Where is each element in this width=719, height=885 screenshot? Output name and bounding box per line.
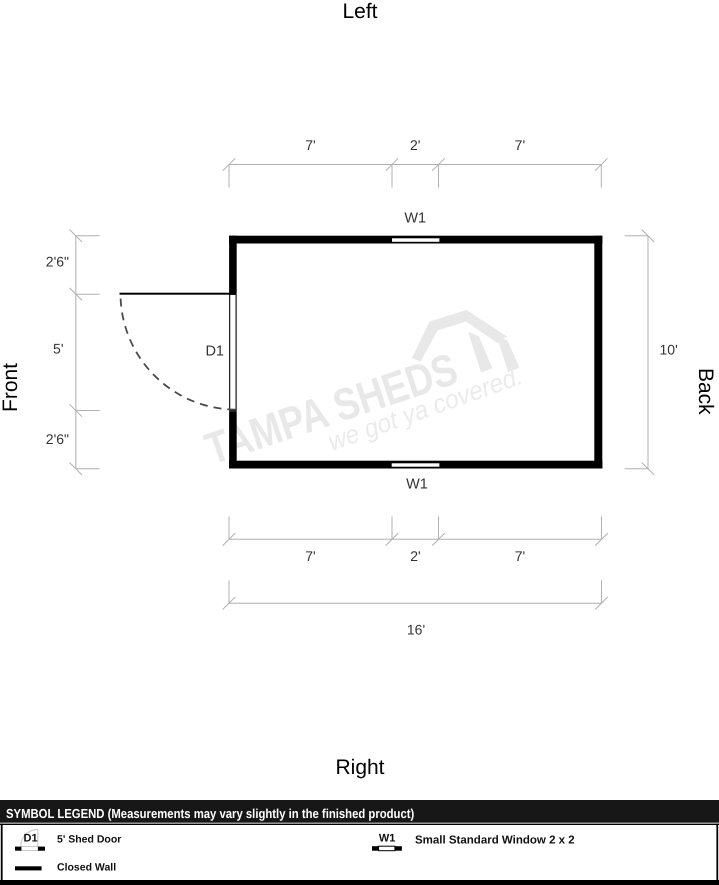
svg-text:2'6": 2'6" (46, 254, 69, 270)
svg-text:7': 7' (305, 137, 315, 153)
svg-text:10': 10' (660, 342, 678, 358)
svg-text:Small Standard Window 2 x 2: Small Standard Window 2 x 2 (415, 835, 575, 847)
svg-text:Right: Right (335, 756, 384, 779)
svg-text:Back: Back (694, 368, 717, 415)
svg-text:D1: D1 (24, 833, 38, 845)
svg-text:W1: W1 (404, 211, 426, 227)
svg-text:Closed Wall: Closed Wall (57, 862, 116, 874)
svg-text:2'6": 2'6" (46, 431, 69, 447)
svg-text:W1: W1 (379, 833, 396, 845)
svg-text:16': 16' (407, 622, 425, 638)
svg-text:2': 2' (410, 137, 420, 153)
svg-text:7': 7' (305, 548, 315, 564)
svg-text:7': 7' (515, 548, 525, 564)
svg-text:7': 7' (515, 137, 525, 153)
svg-text:Left: Left (342, 0, 377, 23)
svg-text:5': 5' (53, 341, 63, 357)
svg-text:2': 2' (410, 548, 420, 564)
svg-text:SYMBOL LEGEND (Measurements ma: SYMBOL LEGEND (Measurements may vary sli… (6, 806, 414, 821)
svg-text:Front: Front (0, 363, 22, 412)
svg-text:D1: D1 (205, 344, 224, 360)
svg-text:W1: W1 (406, 477, 428, 493)
svg-text:5' Shed Door: 5' Shed Door (57, 833, 121, 845)
